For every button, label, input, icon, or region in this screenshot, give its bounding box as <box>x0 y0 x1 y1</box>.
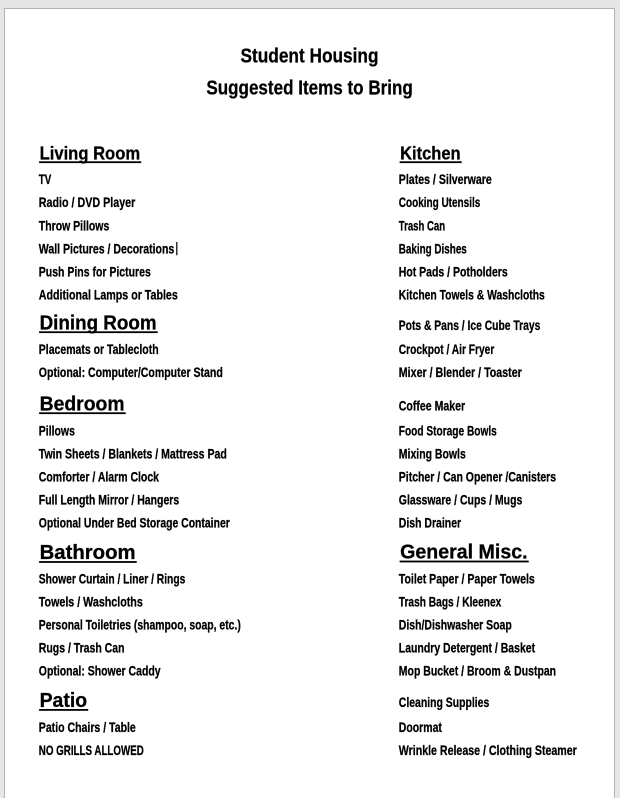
svg-text:Glassware / Cups / Mugs: Glassware / Cups / Mugs <box>399 491 523 507</box>
svg-text:Hot Pads / Potholders: Hot Pads / Potholders <box>399 264 508 280</box>
svg-text:Dish/Dishwasher Soap: Dish/Dishwasher Soap <box>399 617 512 633</box>
svg-text:Toilet Paper / Paper Towels: Toilet Paper / Paper Towels <box>399 571 535 587</box>
svg-text:Crockpot / Air Fryer: Crockpot / Air Fryer <box>399 341 495 357</box>
svg-text:Wrinkle Release / Clothing Ste: Wrinkle Release / Clothing Steamer <box>399 742 577 758</box>
svg-text:Baking Dishes: Baking Dishes <box>399 240 467 256</box>
svg-text:Personal Toiletries (shampoo,: Personal Toiletries (shampoo, soap, etc.… <box>39 617 241 633</box>
svg-text:Twin Sheets / Blankets / Mattr: Twin Sheets / Blankets / Mattress Pad <box>39 445 227 461</box>
svg-text:Bedroom: Bedroom <box>40 393 125 415</box>
svg-text:Kitchen Towels & Washcloths: Kitchen Towels & Washcloths <box>399 287 545 303</box>
svg-text:Placemats or Tablecloth: Placemats or Tablecloth <box>39 341 159 357</box>
svg-text:Trash Can: Trash Can <box>399 217 445 233</box>
svg-text:Living Room: Living Room <box>40 143 141 163</box>
svg-text:Mop Bucket / Broom & Dustpan: Mop Bucket / Broom & Dustpan <box>399 662 556 678</box>
svg-text:Shower Curtain / Liner / Rings: Shower Curtain / Liner / Rings <box>39 571 186 587</box>
svg-text:Mixer / Blender / Toaster: Mixer / Blender / Toaster <box>399 364 522 380</box>
svg-text:Kitchen: Kitchen <box>400 143 461 163</box>
svg-text:Bathroom: Bathroom <box>40 542 136 564</box>
svg-text:Rugs / Trash Can: Rugs / Trash Can <box>39 639 125 655</box>
svg-text:Patio Chairs / Table: Patio Chairs / Table <box>39 719 136 735</box>
svg-text:Cleaning Supplies: Cleaning Supplies <box>399 694 490 710</box>
svg-text:Patio: Patio <box>40 690 88 712</box>
svg-text:Food Storage Bowls: Food Storage Bowls <box>399 422 497 438</box>
svg-text:Dish Drainer: Dish Drainer <box>399 514 462 530</box>
svg-text:Doormat: Doormat <box>399 719 442 735</box>
svg-text:Full Length Mirror / Hangers: Full Length Mirror / Hangers <box>39 491 180 507</box>
svg-text:Dining Room: Dining Room <box>40 312 157 334</box>
svg-text:Optional Under Bed Storage Con: Optional Under Bed Storage Container <box>39 514 230 530</box>
svg-text:Student Housing: Student Housing <box>241 46 379 68</box>
svg-text:Optional: Computer/Computer St: Optional: Computer/Computer Stand <box>39 364 223 380</box>
svg-text:Plates / Silverware: Plates / Silverware <box>399 171 492 187</box>
svg-text:Mixing Bowls: Mixing Bowls <box>399 445 466 461</box>
svg-text:Coffee Maker: Coffee Maker <box>399 397 466 413</box>
svg-text:Cooking Utensils: Cooking Utensils <box>399 194 481 210</box>
svg-text:Trash Bags / Kleenex: Trash Bags / Kleenex <box>399 594 502 610</box>
svg-text:Wall Pictures / Decorations: Wall Pictures / Decorations <box>39 240 175 256</box>
svg-text:Pitcher / Can Opener /Canister: Pitcher / Can Opener /Canisters <box>399 469 556 485</box>
svg-text:Pillows: Pillows <box>39 422 75 438</box>
svg-text:NO GRILLS ALLOWED: NO GRILLS ALLOWED <box>39 742 144 758</box>
svg-text:Suggested Items to Bring: Suggested Items to Bring <box>206 78 413 100</box>
svg-text:Radio / DVD Player: Radio / DVD Player <box>39 194 136 210</box>
svg-text:General Misc.: General Misc. <box>400 542 527 564</box>
svg-text:Laundry Detergent / Basket: Laundry Detergent / Basket <box>399 639 536 655</box>
svg-text:Pots & Pans / Ice Cube Trays: Pots & Pans / Ice Cube Trays <box>399 317 541 333</box>
svg-text:Push Pins for Pictures: Push Pins for Pictures <box>39 264 151 280</box>
svg-text:Comforter / Alarm Clock: Comforter / Alarm Clock <box>39 469 159 485</box>
svg-text:Towels / Washcloths: Towels / Washcloths <box>39 594 143 610</box>
svg-text:TV: TV <box>39 171 52 187</box>
svg-text:Additional Lamps or Tables: Additional Lamps or Tables <box>39 287 178 303</box>
svg-text:Throw Pillows: Throw Pillows <box>39 217 110 233</box>
svg-text:Optional: Shower Caddy: Optional: Shower Caddy <box>39 662 161 678</box>
